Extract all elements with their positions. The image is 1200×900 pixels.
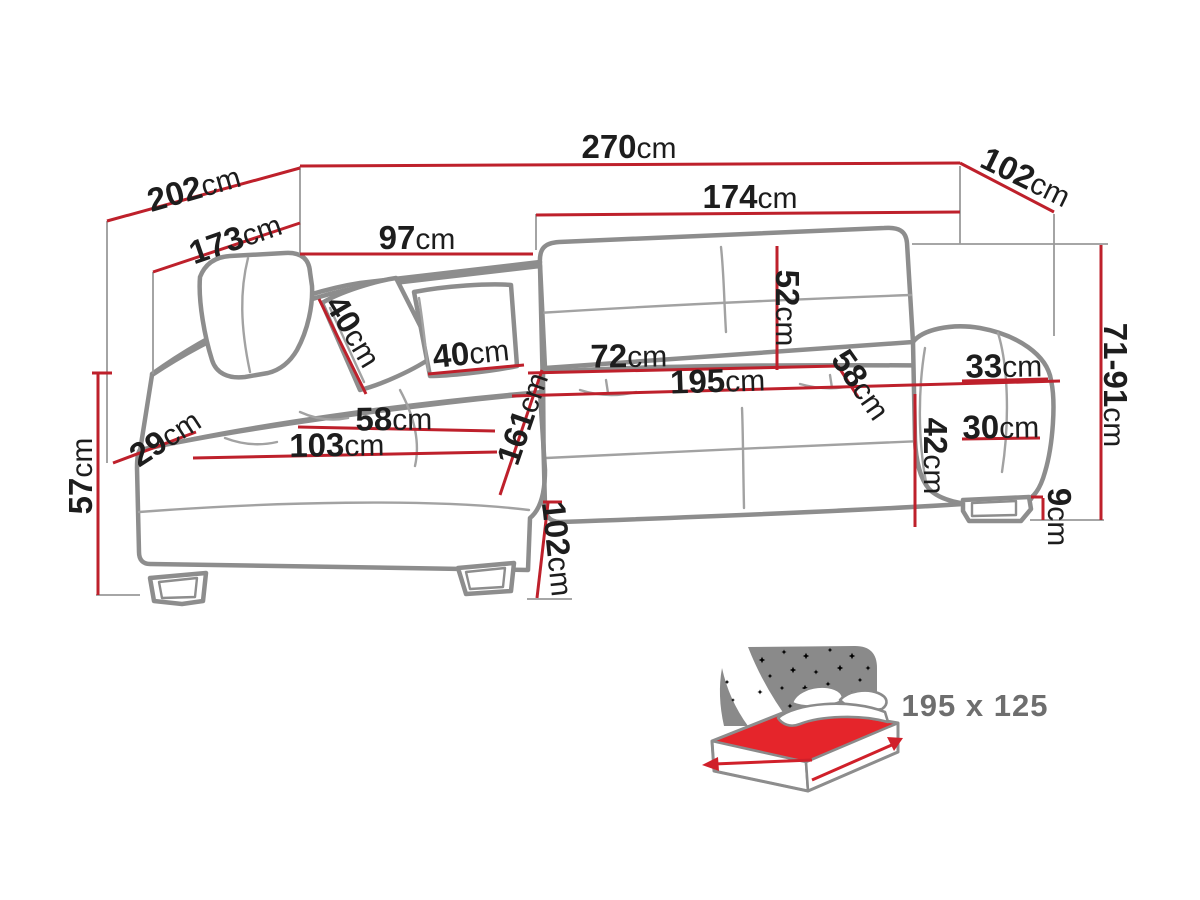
bed-width-arrowhead xyxy=(702,757,719,771)
dim-label-30: 30cm xyxy=(962,407,1039,445)
dim-label-72: 72cm xyxy=(590,336,667,374)
dim-label-102-top: 102cm xyxy=(975,139,1077,214)
dim-label-103: 103cm xyxy=(289,425,385,464)
dim-label-52: 52cm xyxy=(769,270,806,347)
dim-label-57: 57cm xyxy=(62,438,99,515)
dim-label-33: 33cm xyxy=(965,346,1042,384)
sleeping-size-label: 195 x 125 xyxy=(902,688,1049,723)
dim-label-195: 195cm xyxy=(669,360,765,400)
dim-label-202: 202cm xyxy=(143,157,245,219)
sleeping-area-icon xyxy=(702,646,903,791)
dim-label-97: 97cm xyxy=(379,219,456,256)
sofa-dimension-diagram: 202cm 270cm 102cm 173cm 97cm 174cm 52cm … xyxy=(0,0,1200,900)
night-sky-swoosh xyxy=(720,668,748,726)
dim-label-42: 42cm xyxy=(917,418,954,495)
dim-label-174: 174cm xyxy=(702,178,797,215)
dim-label-9: 9cm xyxy=(1041,488,1078,546)
dim-label-270: 270cm xyxy=(581,128,676,165)
dim-label-71-91: 71-91cm xyxy=(1097,323,1134,447)
diagram-canvas: 202cm 270cm 102cm 173cm 97cm 174cm 52cm … xyxy=(0,0,1200,900)
